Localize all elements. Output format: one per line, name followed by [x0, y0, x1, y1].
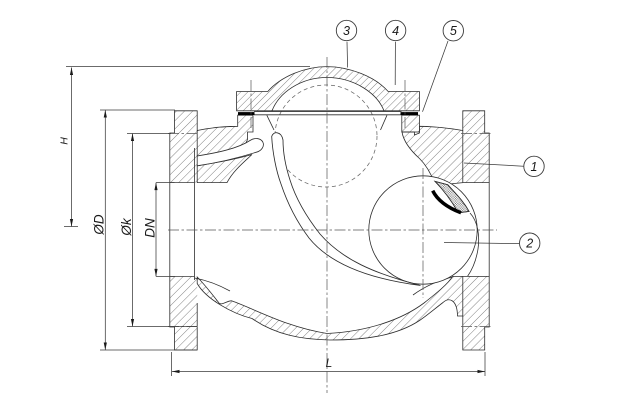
svg-text:ØD: ØD	[92, 214, 107, 236]
svg-text:L: L	[326, 356, 333, 370]
svg-text:4: 4	[392, 24, 399, 38]
svg-text:H: H	[59, 137, 71, 145]
svg-text:3: 3	[343, 24, 350, 38]
svg-text:5: 5	[450, 24, 457, 38]
svg-text:Øk: Øk	[119, 217, 134, 237]
svg-text:2: 2	[525, 237, 533, 251]
svg-text:DN: DN	[143, 218, 158, 238]
svg-text:1: 1	[531, 160, 538, 174]
